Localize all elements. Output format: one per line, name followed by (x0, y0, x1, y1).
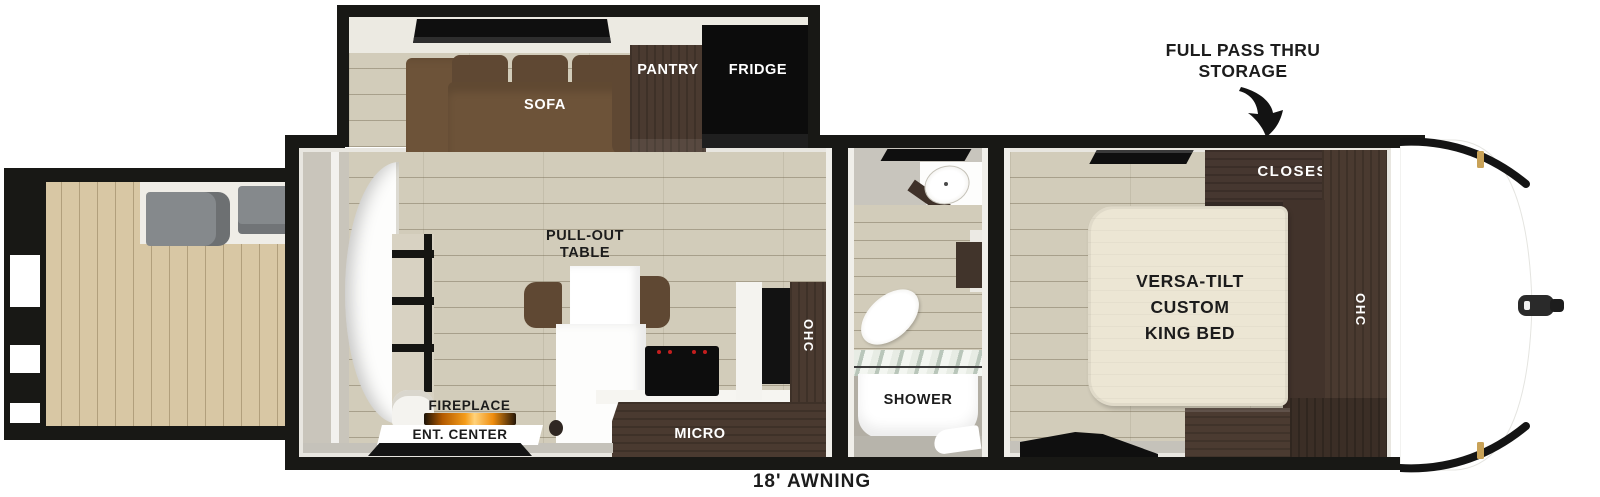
storage-callout-line1: FULL PASS THRU (1128, 40, 1358, 61)
kitchen-ohc-label: OHC (791, 313, 827, 359)
sofa-label: SOFA (503, 97, 587, 114)
tv (760, 288, 790, 384)
bed-label-line2: CUSTOM (1100, 294, 1280, 320)
patio-railing-gap (10, 403, 40, 423)
wall-left (285, 135, 299, 470)
stove (645, 346, 719, 396)
king-bed-label: VERSA-TILT CUSTOM KING BED (1100, 268, 1280, 346)
hitch-notch (1524, 301, 1530, 310)
hitch-arm (1518, 295, 1554, 316)
wall-top-front (808, 135, 1425, 148)
pullout-table (570, 266, 640, 332)
storage-callout: FULL PASS THRU STORAGE (1128, 40, 1358, 82)
bed-headboard (1283, 200, 1325, 412)
micro-label: MICRO (656, 426, 744, 443)
patio-bench (238, 186, 292, 234)
bath-window (881, 149, 972, 161)
patio-railing-gap (10, 345, 40, 373)
fridge-label: FRIDGE (712, 62, 804, 79)
fridge (702, 25, 808, 148)
bedroom-window (1089, 150, 1193, 164)
patio-wall-top (4, 168, 292, 182)
counter-faucet (549, 420, 563, 436)
rear-wall-band (303, 152, 349, 453)
pullout-label-line1: PULL-OUT (520, 228, 650, 245)
ent-center-base (368, 443, 532, 456)
rear-screen-post (424, 234, 432, 392)
bedroom-corner-cabinet (1290, 398, 1387, 457)
bath-niche (956, 242, 982, 288)
wall-bottom (285, 457, 1425, 470)
bath-wall-right (988, 148, 1004, 457)
awning-label: 18' AWNING (692, 471, 932, 493)
slideout-window (413, 19, 611, 43)
patio-railing-gap (10, 255, 40, 307)
bath-wall-left (832, 148, 848, 457)
pullout-table-label: PULL-OUT TABLE (520, 228, 650, 261)
patio-wall-bottom (4, 426, 292, 440)
shower-rod (854, 366, 982, 368)
pantry-label: PANTRY (624, 62, 712, 79)
front-cap (1400, 130, 1570, 480)
stove-knob (703, 350, 707, 354)
marker-light (1477, 151, 1484, 168)
wall-top-rear (285, 135, 345, 148)
shower-label: SHOWER (874, 392, 962, 409)
storage-arrow-icon (1238, 86, 1293, 138)
fireplace-flame (424, 413, 516, 425)
bath-sink-drain (944, 182, 948, 186)
stove-knob (657, 350, 661, 354)
hitch-coupler (1550, 299, 1564, 312)
patio-bench (146, 192, 230, 246)
bed-label-line3: KING BED (1100, 320, 1280, 346)
stove-knob (692, 350, 696, 354)
marker-light (1477, 442, 1484, 459)
bed-foot-dresser (1185, 408, 1291, 457)
storage-callout-line2: STORAGE (1128, 61, 1358, 82)
fireplace-label: FIREPLACE (412, 398, 527, 414)
stove-knob (668, 350, 672, 354)
kitchen-wall-white (736, 282, 762, 400)
bedroom-ohc-label: OHC (1343, 287, 1379, 333)
front-cap-body (1400, 140, 1532, 470)
ent-center-label: ENT. CENTER (377, 427, 543, 443)
bed-label-line1: VERSA-TILT (1100, 268, 1280, 294)
rear-wall-trim (331, 152, 339, 453)
rv-floor-plan: SOFA PANTRY FRIDGE PULL-OUT TABLE OHC MI… (0, 0, 1600, 497)
pullout-label-line2: TABLE (520, 245, 650, 262)
dining-chair (524, 282, 562, 328)
shower-glass (854, 350, 982, 376)
